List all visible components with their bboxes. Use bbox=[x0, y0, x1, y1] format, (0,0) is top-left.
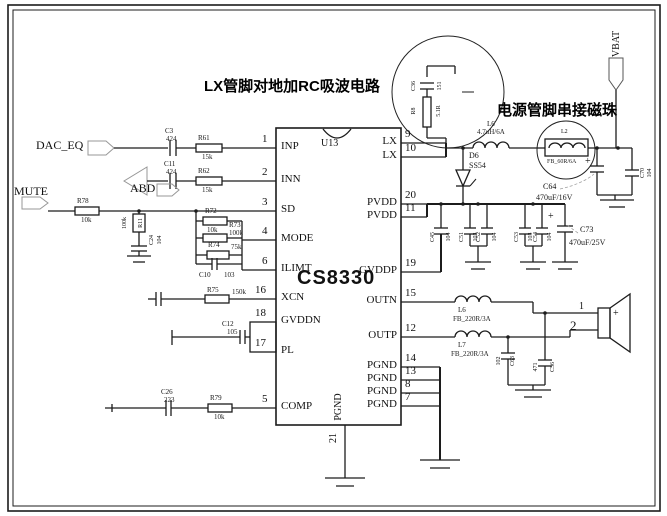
inductor-l6 bbox=[473, 142, 509, 148]
ref-c53: C53 bbox=[514, 227, 520, 247]
val-c36: 151 bbox=[437, 76, 443, 96]
resistor-r61 bbox=[196, 144, 222, 152]
output-stage bbox=[401, 294, 630, 397]
val-c12: 105 bbox=[227, 329, 238, 336]
pin-number-16: 16 bbox=[255, 285, 266, 296]
net-dac-eq bbox=[88, 140, 276, 156]
val-r73: 100k bbox=[229, 230, 243, 237]
ref-c54: C54 bbox=[533, 227, 539, 247]
speaker-cone bbox=[610, 294, 630, 352]
pin-label-mode: MODE bbox=[281, 233, 313, 244]
ref-c56: C56 bbox=[550, 357, 556, 377]
dac-eq-connector bbox=[88, 141, 114, 155]
speaker-plus: + bbox=[613, 309, 619, 319]
val-c24: 104 bbox=[157, 230, 163, 250]
val-r75: 150k bbox=[232, 289, 246, 296]
ic-notch bbox=[323, 129, 351, 138]
pin-label-lx2: LX bbox=[357, 150, 397, 161]
net-label-dac-eq: DAC_EQ bbox=[36, 139, 83, 151]
val-r78: 10k bbox=[81, 217, 92, 224]
val-r61: 15k bbox=[202, 154, 213, 161]
val-c70: 104 bbox=[647, 163, 653, 183]
net-label-abd: ABD bbox=[130, 182, 155, 194]
ref-c45: C45 bbox=[430, 227, 436, 247]
pin-label-outp: OUTP bbox=[357, 330, 397, 341]
pin-label-pvdd2: PVDD bbox=[357, 210, 397, 221]
ferrite-l6fb bbox=[455, 296, 491, 302]
pin-number-10: 10 bbox=[405, 143, 416, 154]
net-mute bbox=[22, 197, 276, 215]
pin-number-8: 8 bbox=[405, 379, 411, 390]
ref-c11: C11 bbox=[164, 161, 175, 168]
val-r79: 10k bbox=[214, 414, 225, 421]
schematic-page: LX管脚对地加RC吸波电路 电源管脚串接磁珠 DAC_EQ MUTE ABD V… bbox=[0, 0, 667, 516]
pin-number-7: 7 bbox=[405, 392, 411, 403]
resistor-r75 bbox=[205, 295, 229, 303]
resistor-r79 bbox=[208, 404, 232, 412]
pin-number-21: 21 bbox=[329, 428, 339, 448]
val-r8: 5.1R bbox=[436, 99, 442, 123]
vbat-connector bbox=[609, 58, 623, 90]
val-c3: 424 bbox=[166, 136, 177, 143]
ref-c63: C63 bbox=[510, 351, 516, 371]
ref-c36: C36 bbox=[411, 76, 417, 96]
val-c63: 102 bbox=[496, 351, 502, 371]
pin-number-19: 19 bbox=[405, 258, 416, 269]
val-l2: FB_60R/6A bbox=[547, 159, 576, 165]
val-c52: 104 bbox=[492, 227, 498, 247]
val-d6: SS54 bbox=[469, 162, 486, 170]
net-label-vbat: VBAT bbox=[612, 28, 622, 60]
ref-r72: R72 bbox=[205, 208, 217, 215]
val-c64: 470uF/16V bbox=[536, 194, 572, 202]
pin-label-pgnd14: PGND bbox=[357, 360, 397, 371]
pin-label-pvdd1: PVDD bbox=[357, 197, 397, 208]
pin-label-pgnd21: PGND bbox=[334, 392, 344, 422]
pin-label-inn: INN bbox=[281, 174, 301, 185]
pin-number-4: 4 bbox=[262, 226, 268, 237]
speaker-body bbox=[598, 308, 610, 338]
ref-l7-fb: L7 bbox=[458, 342, 466, 349]
val-l6-ind: 4.7uH/6A bbox=[477, 129, 505, 136]
ref-c3: C3 bbox=[165, 128, 173, 135]
val-l6-fb: FB_220R/3A bbox=[453, 316, 491, 323]
val-l7-fb: FB_220R/3A bbox=[451, 351, 489, 358]
ref-l6-fb: L6 bbox=[458, 307, 466, 314]
plus-c64: + bbox=[585, 157, 591, 167]
pin-label-pl: PL bbox=[281, 345, 294, 356]
val-c45: 104 bbox=[446, 227, 452, 247]
pin-label-pgnd7: PGND bbox=[357, 399, 397, 410]
pin-number-15: 15 bbox=[405, 288, 416, 299]
pin-label-outn: OUTN bbox=[357, 295, 397, 306]
speaker-terminal-1: 1 bbox=[579, 302, 584, 312]
val-r74: 75k bbox=[231, 244, 242, 251]
pin-number-20: 20 bbox=[405, 190, 416, 201]
resistor-r72 bbox=[203, 217, 227, 225]
ref-c24: C24 bbox=[149, 230, 155, 250]
ref-r61: R61 bbox=[198, 135, 210, 142]
ref-r79: R79 bbox=[210, 395, 222, 402]
ref-l6-ind: L6 bbox=[487, 121, 495, 128]
val-r11: 100k bbox=[122, 211, 128, 235]
ref-c12: C12 bbox=[222, 321, 234, 328]
ref-r11: R11 bbox=[138, 212, 144, 234]
pin-label-gvddn: GVDDN bbox=[281, 315, 321, 326]
pin-number-6: 6 bbox=[262, 256, 268, 267]
ferrite-l7fb bbox=[455, 331, 491, 337]
ref-r73: R73 bbox=[229, 222, 241, 229]
val-r62: 15k bbox=[202, 187, 213, 194]
ref-r62: R62 bbox=[198, 168, 210, 175]
pin-number-17: 17 bbox=[255, 338, 266, 349]
val-r72: 10k bbox=[207, 227, 218, 234]
plus-c73: + bbox=[548, 212, 554, 222]
pin-number-5: 5 bbox=[262, 394, 268, 405]
pin-number-1: 1 bbox=[262, 134, 268, 145]
val-c11: 424 bbox=[166, 169, 177, 176]
pin-number-18: 18 bbox=[255, 308, 266, 319]
ref-c52: C52 bbox=[476, 227, 482, 247]
ref-r74: R74 bbox=[208, 242, 220, 249]
resistor-r78 bbox=[75, 207, 99, 215]
ref-d6: D6 bbox=[469, 152, 479, 160]
comp-row bbox=[105, 400, 276, 416]
ref-c10: C10 bbox=[199, 272, 211, 279]
snubber-note: LX管脚对地加RC吸波电路 bbox=[204, 79, 380, 94]
pin-label-comp: COMP bbox=[281, 401, 312, 412]
pin-label-lx1: LX bbox=[357, 136, 397, 147]
val-c73: 470uF/25V bbox=[569, 239, 605, 247]
bead-note: 电源管脚串接磁珠 bbox=[497, 103, 617, 118]
ref-l2: L2 bbox=[561, 129, 568, 135]
pin-label-sd: SD bbox=[281, 204, 295, 215]
ref-c51: C51 bbox=[459, 227, 465, 247]
ref-c64: C64 bbox=[543, 183, 556, 191]
resistor-r62 bbox=[196, 177, 222, 185]
speaker-terminal-2: 2 bbox=[570, 319, 577, 332]
resistor-r8 bbox=[423, 97, 431, 127]
ic-refdes: U13 bbox=[321, 139, 338, 149]
ref-c73: C73 bbox=[580, 226, 593, 234]
pin-label-ilimt: ILIMT bbox=[281, 263, 312, 274]
pin-label-inp: INP bbox=[281, 141, 299, 152]
resistor-r74 bbox=[207, 251, 229, 259]
pin-number-3: 3 bbox=[262, 197, 268, 208]
pin-label-xcn: XCN bbox=[281, 292, 304, 303]
mute-connector bbox=[22, 197, 48, 209]
ferrite-l2 bbox=[545, 139, 588, 156]
pin-label-gvddp: GVDDP bbox=[357, 265, 397, 276]
net-label-mute: MUTE bbox=[14, 185, 48, 197]
val-c26: 223 bbox=[164, 397, 175, 404]
pin-number-11: 11 bbox=[405, 203, 416, 214]
pin-number-12: 12 bbox=[405, 323, 416, 334]
pin-number-2: 2 bbox=[262, 167, 268, 178]
val-c54: 104 bbox=[547, 227, 553, 247]
pin-number-9: 9 bbox=[405, 129, 411, 140]
val-c10: 103 bbox=[224, 272, 235, 279]
val-c56: 471 bbox=[533, 357, 539, 377]
pin-label-pgnd8: PGND bbox=[357, 386, 397, 397]
pin-number-14: 14 bbox=[405, 353, 416, 364]
ref-r8: R8 bbox=[411, 101, 417, 121]
ref-c26: C26 bbox=[161, 389, 173, 396]
ref-c70: C70 bbox=[640, 163, 646, 183]
ref-r78: R78 bbox=[77, 198, 89, 205]
pin-number-13: 13 bbox=[405, 366, 416, 377]
pin-label-pgnd13: PGND bbox=[357, 373, 397, 384]
ref-r75: R75 bbox=[207, 287, 219, 294]
